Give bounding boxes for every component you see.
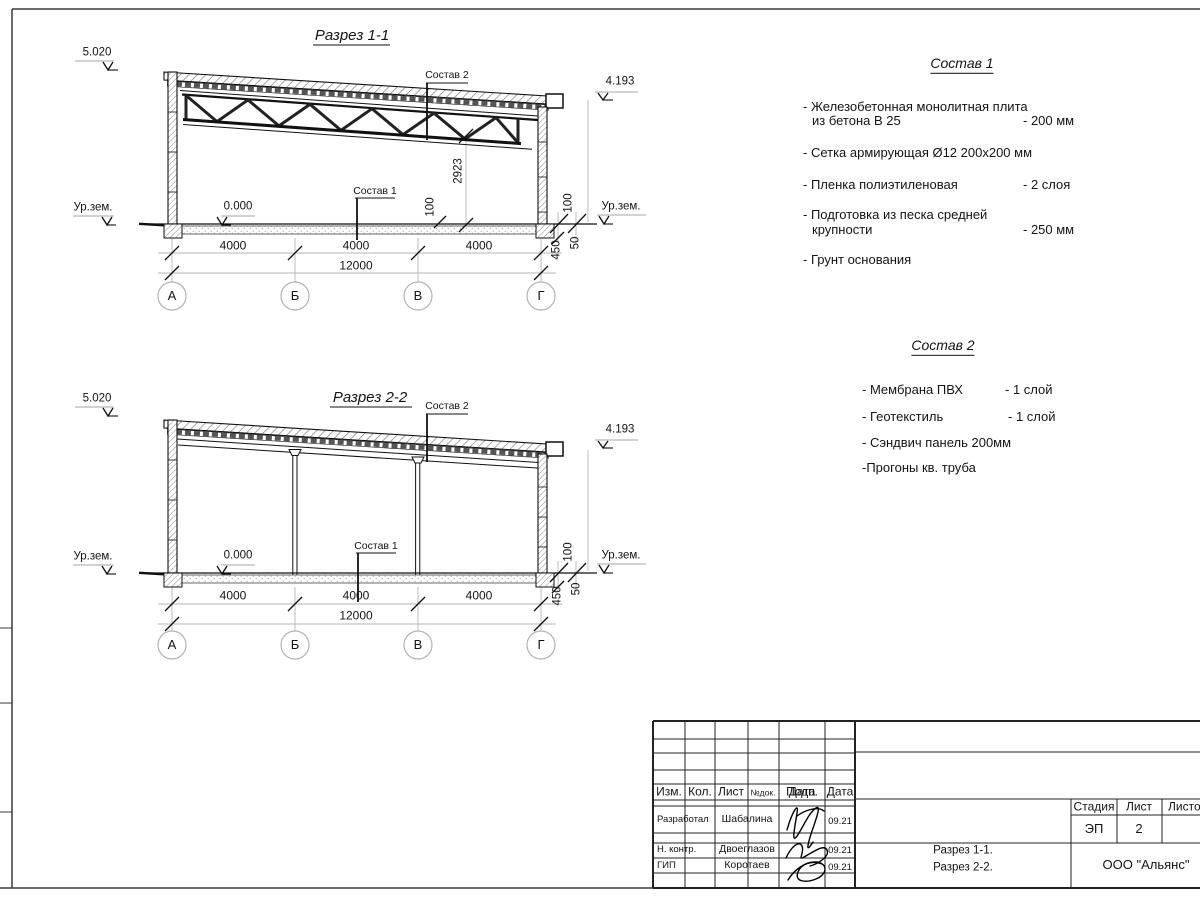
titleblock-row2-name: Двоеглазов <box>719 844 775 856</box>
titleblock-doc-line2: Разрез 2-2. <box>933 862 993 875</box>
drawing-sheet: Разрез 1-1 5.020 4.193 Состав 2 Состав 1… <box>0 0 1200 900</box>
dim-total: 12000 <box>339 259 372 272</box>
elevation-mark-top: 5.020 <box>83 393 112 406</box>
dim-wall-offset: 100 <box>563 193 576 212</box>
dim-total: 12000 <box>339 609 372 622</box>
titleblock-col-data: Дата <box>827 785 854 798</box>
notes1-heading: Состав 1 <box>930 56 993 74</box>
dim-span-1: 4000 <box>220 589 247 602</box>
dim-truss-height: 2923 <box>453 158 466 184</box>
notes1-item1-line2: из бетона В 25 <box>812 114 901 128</box>
notes1-item3: - Пленка полиэтиленовая <box>803 178 958 192</box>
notes1-item2: - Сетка армирующая Ø12 200х200 мм <box>803 146 1032 160</box>
floor-level-mark: 0.000 <box>224 201 253 214</box>
elevation-mark-roof: 4.193 <box>606 424 635 437</box>
signature-marks <box>786 807 827 881</box>
notes1-item1-value: - 200 мм <box>1023 114 1074 128</box>
notes1-item4-value: - 250 мм <box>1023 223 1074 237</box>
dim-span-3: 4000 <box>466 589 493 602</box>
dim-foundation-depth: 450 <box>552 586 565 605</box>
ground-level-label-right: Ур.зем. <box>601 201 640 214</box>
dim-sand-bed: 50 <box>571 583 584 596</box>
sostav1-reference: Состав 1 <box>353 186 397 198</box>
titleblock-col-podp: Подп. <box>786 785 818 798</box>
axis-bubble-b: Б <box>291 289 300 303</box>
dim-span-1: 4000 <box>220 239 247 252</box>
sheet-frame <box>0 9 1200 888</box>
notes2-item2-value: - 1 слой <box>1008 410 1056 424</box>
dim-slab-thickness: 100 <box>425 197 438 216</box>
titleblock-sheet-label: Лист <box>1126 800 1152 813</box>
dim-sand-bed: 50 <box>570 237 583 250</box>
notes1-item3-value: - 2 слоя <box>1023 178 1070 192</box>
titleblock-sheet-value: 2 <box>1135 822 1142 836</box>
notes1-item4-line1: - Подготовка из песка средней <box>803 208 987 222</box>
axis-bubble-b: Б <box>291 638 300 652</box>
drawing-linework <box>0 0 1200 900</box>
notes2-item3: - Сэндвич панель 200мм <box>862 436 1011 450</box>
titleblock-row2-date: 09.21 <box>828 846 852 856</box>
titleblock-col-ndok: №док. <box>751 788 776 797</box>
titleblock-row3-role: ГИП <box>657 861 676 871</box>
sostav1-reference: Состав 1 <box>354 541 398 553</box>
axis-bubble-g: Г <box>537 289 544 303</box>
elevation-mark-top: 5.020 <box>83 47 112 60</box>
titleblock-stage-label: Стадия <box>1074 800 1115 813</box>
titleblock-col-list: Лист <box>718 785 744 798</box>
notes2-item1: - Мембрана ПВХ <box>862 383 963 397</box>
section-1-title: Разрез 1-1 <box>315 28 389 45</box>
titleblock-sheets-label: Листов <box>1168 800 1200 813</box>
notes2-item2: - Геотекстиль <box>862 410 943 424</box>
sostav2-reference: Состав 2 <box>425 401 469 413</box>
signature-2 <box>786 844 827 881</box>
section-2-title: Разрез 2-2 <box>333 390 407 407</box>
signature-1 <box>787 807 824 847</box>
axis-bubble-a: А <box>168 289 177 303</box>
titleblock-row3-date: 09.21 <box>828 863 852 873</box>
notes2-heading: Состав 2 <box>911 338 974 356</box>
titleblock-col-izm: Изм. <box>656 785 682 798</box>
titleblock-row3-name: Коротаев <box>724 860 769 872</box>
titleblock-doc-line1: Разрез 1-1. <box>933 845 993 858</box>
titleblock-company: ООО "Альянс" <box>1103 858 1190 872</box>
dim-span-2: 4000 <box>343 589 370 602</box>
titleblock-row1-date: 09.21 <box>828 817 852 827</box>
titleblock-stage-value: ЭП <box>1085 822 1104 836</box>
axis-bubble-v: В <box>414 638 423 652</box>
titleblock-row1-role: Разработал <box>657 815 709 825</box>
titleblock-row1-name: Шабалина <box>722 814 773 826</box>
ground-level-label-left: Ур.зем. <box>73 202 112 215</box>
elevation-mark-roof: 4.193 <box>606 76 635 89</box>
notes2-item1-value: - 1 слой <box>1005 383 1053 397</box>
notes1-item4-line2: крупности <box>812 223 872 237</box>
dim-span-3: 4000 <box>466 239 493 252</box>
dim-wall-offset: 100 <box>563 542 576 561</box>
titleblock-col-kol: Кол. <box>688 785 712 798</box>
axis-bubble-a: А <box>168 638 177 652</box>
axis-bubble-g: Г <box>537 638 544 652</box>
notes2-item4: -Прогоны кв. труба <box>862 461 976 475</box>
sostav2-reference: Состав 2 <box>425 70 469 82</box>
floor-level-mark: 0.000 <box>224 550 253 563</box>
axis-bubble-v: В <box>414 289 423 303</box>
ground-level-label-left: Ур.зем. <box>73 551 112 564</box>
dim-span-2: 4000 <box>343 239 370 252</box>
notes1-item5: - Грунт основания <box>803 253 911 267</box>
titleblock-row2-role: Н. контр. <box>657 845 696 855</box>
ground-level-label-right: Ур.зем. <box>601 550 640 563</box>
dim-foundation-depth: 450 <box>551 240 564 259</box>
